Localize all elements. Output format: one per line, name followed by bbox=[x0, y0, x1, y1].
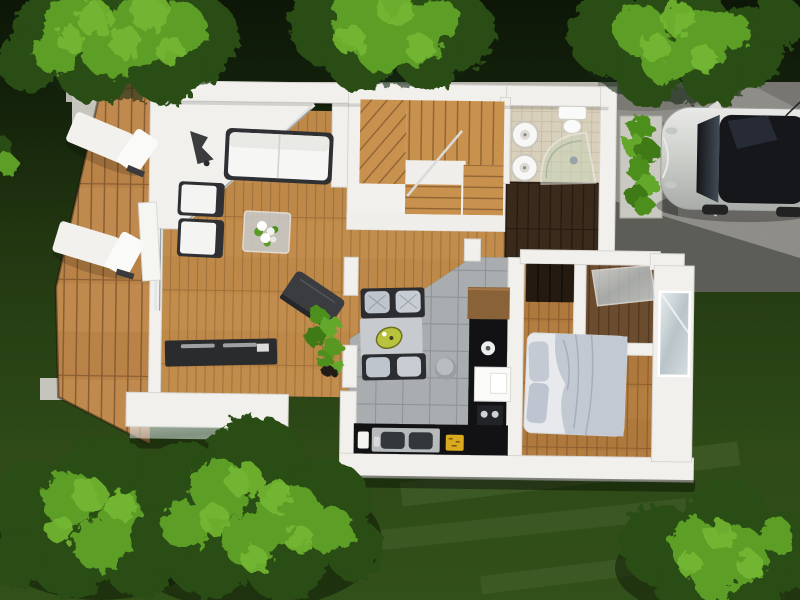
wall-pillar-1 bbox=[344, 257, 359, 295]
wall-east-upper bbox=[598, 87, 616, 263]
wall-pillar-3 bbox=[464, 239, 480, 261]
wall-pillar-2 bbox=[342, 345, 357, 387]
car-wheel-front bbox=[702, 204, 728, 214]
bed-pillow-2 bbox=[526, 382, 550, 424]
stair-band bbox=[347, 213, 505, 231]
kitchen-cabinet bbox=[467, 287, 509, 320]
house bbox=[46, 79, 701, 492]
wardrobe bbox=[526, 264, 575, 303]
bedroom-window bbox=[659, 292, 690, 376]
armchair-2 bbox=[177, 218, 225, 258]
stair-upper-flight bbox=[359, 99, 406, 184]
car-windshield bbox=[696, 114, 720, 202]
modular-sofa bbox=[359, 287, 426, 380]
stair-top-flight bbox=[406, 100, 505, 165]
armchair-1 bbox=[177, 181, 225, 217]
coffee-machine bbox=[477, 405, 503, 427]
car-wheel-rear bbox=[776, 207, 800, 217]
bed-pillow-1 bbox=[528, 341, 549, 382]
render-canvas bbox=[0, 0, 800, 600]
stair-lower-flight bbox=[463, 165, 504, 216]
light-switch bbox=[358, 431, 369, 448]
coffee-table bbox=[243, 211, 291, 253]
toilet bbox=[558, 106, 586, 119]
double-bed bbox=[524, 332, 628, 436]
kitchen-sink bbox=[372, 428, 440, 453]
fruit-bowl bbox=[446, 435, 464, 451]
media-console bbox=[165, 338, 278, 366]
parked-car bbox=[656, 100, 800, 224]
white-sofa bbox=[224, 128, 334, 185]
porch-glass-door bbox=[592, 265, 657, 307]
wall-bedroom-top bbox=[520, 250, 660, 266]
